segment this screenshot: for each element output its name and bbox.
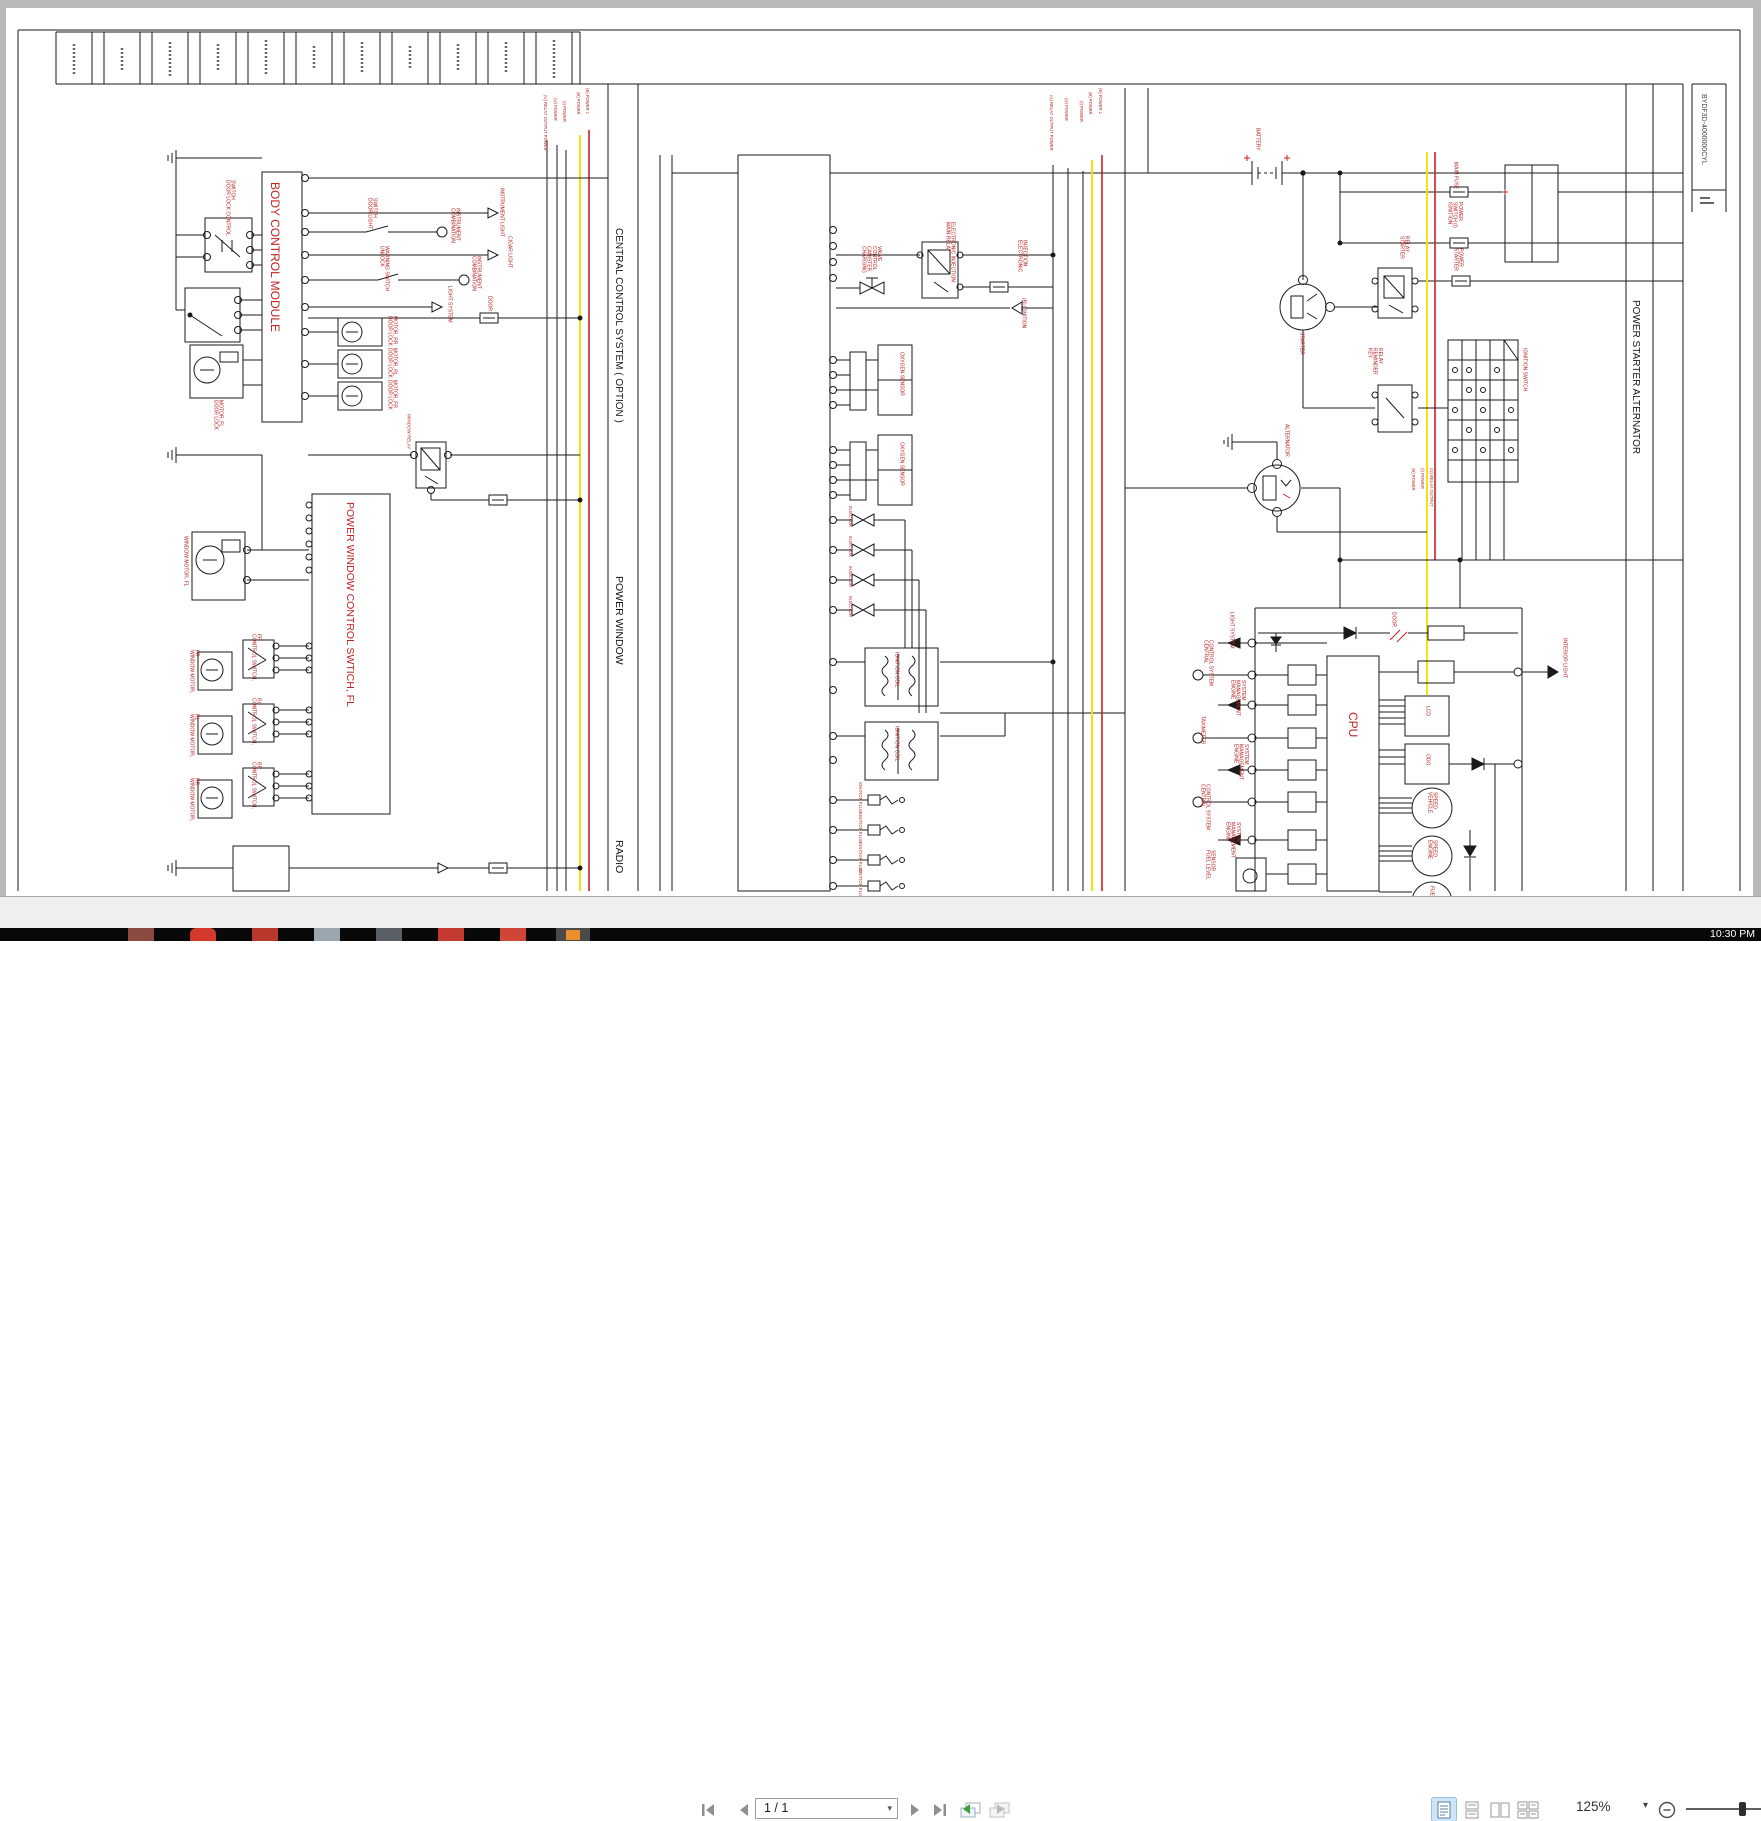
next-page-button[interactable]	[904, 1799, 928, 1821]
bus-label: (B) POWER	[1411, 468, 1415, 491]
bus-label: (U) RELAY OUTPUT POWER	[543, 95, 547, 151]
section-title-power-window: POWER WINDOW	[613, 576, 625, 665]
label-lcd: LCD	[1424, 706, 1429, 728]
taskbar-app-icon[interactable]	[252, 928, 278, 941]
label-door-lock-motor-fr: DOOR LOCK MOTOR, FR	[386, 380, 397, 416]
taskbar-app-icon[interactable]	[438, 928, 464, 941]
label-injector: INJECTOR	[848, 506, 852, 527]
chevron-down-icon[interactable]: ▾	[887, 1799, 892, 1818]
label-door-fuse: DOOR	[486, 296, 491, 316]
wiring-diagram-svg	[0, 0, 1761, 941]
window-left-edge	[0, 8, 6, 896]
label-control-switch-rr: CONTROL SWITCH, RR	[250, 762, 261, 810]
label-window-relay: WINDOW RELAY	[406, 414, 411, 442]
bus-label: (U) RELAY OUTPUT POWER	[1049, 95, 1053, 151]
label-pwcs: POWER WINDOW CONTROL SWTICH, FL	[344, 502, 356, 707]
label-ignition-switch-power: IGNITION SWITCH (I) POWER	[1446, 202, 1462, 238]
section-title-power-starter-alternator: POWER STARTER ALTERNATOR	[1630, 300, 1641, 454]
zoom-dropdown-caret-icon[interactable]: ▾	[1643, 1800, 1648, 1811]
label-bcm: BODY CONTROL MODULE	[268, 182, 282, 332]
section-title-central-control: CENTRAL CONTROL SYSTEM ( OPTION )	[613, 228, 624, 423]
label-ignition-coil: IGNITION COIL	[893, 652, 898, 702]
zoom-percent: 125%	[1576, 1799, 1611, 1814]
label-main-fuse: MAIN FUSE	[1452, 162, 1457, 190]
bus-label: (I) POWER	[562, 101, 566, 122]
pdf-page-canvas[interactable]: CENTRAL CONTROL SYSTEM ( OPTION ) POWER …	[0, 0, 1761, 941]
page-indicator: 1 / 1	[764, 1801, 788, 1815]
label-ignition-switch: IGNITION SWITCH	[1521, 348, 1526, 392]
label-window-motor-fl: WINDOW MOTOR, FL	[182, 536, 187, 600]
bus-label: (U) POWER	[1064, 98, 1068, 121]
label-fuel-level-sensor: FUEL LEVEL SENSOR	[1204, 850, 1215, 890]
next-view-button[interactable]	[985, 1799, 1013, 1821]
bus-label: (B) POWER	[1088, 92, 1092, 115]
label-starter: STARTER	[1298, 332, 1303, 366]
right-section	[578, 152, 1683, 922]
taskbar-app-icon[interactable]	[128, 928, 154, 941]
label-door-indicator: DOOR	[1390, 612, 1395, 632]
label-combination-instrument: COMBINATION INSTRUMENT	[449, 208, 460, 264]
continuous-facing-layout-button[interactable]	[1516, 1798, 1540, 1821]
label-ignition-coil: IGNITION COIL	[893, 726, 898, 776]
label-vehicle-speed: VEHICLE SPEED	[1426, 792, 1437, 826]
single-page-layout-button[interactable]	[1432, 1798, 1456, 1821]
taskbar-app-icon[interactable]	[314, 928, 340, 941]
label-cpu: CPU	[1346, 712, 1360, 737]
label-ignition-b: (B) IGNITION	[1020, 298, 1025, 338]
left-power-bus	[547, 130, 589, 891]
label-cigar-light: CIGAR LIGHT	[506, 236, 511, 276]
taskbar-clock[interactable]: 10:30 PM	[1710, 928, 1755, 941]
zoom-slider[interactable]	[1686, 1808, 1761, 1810]
window-right-edge	[1753, 8, 1761, 896]
bus-label: (B) POWER	[576, 92, 580, 115]
previous-view-button[interactable]	[956, 1799, 984, 1821]
folder-icon	[566, 930, 580, 940]
bus-label: (B) POWER 1	[585, 88, 589, 114]
window-top-edge	[0, 0, 1761, 8]
label-window-motor-fr: WINDOW MOTOR, FR	[188, 650, 199, 694]
label-combination-instrument: COMBINATION INSTRUMENT	[470, 256, 481, 312]
taskbar-app-icon[interactable]	[190, 928, 216, 941]
bus-label: (B) POWER 1	[1098, 88, 1102, 114]
label-engine-speed: ENGINE SPEED	[1426, 840, 1437, 874]
label-main-relay: MAIN RELAY ELECTRONIC INJECTION	[944, 222, 955, 282]
zoom-out-button[interactable]	[1655, 1799, 1679, 1821]
first-page-button[interactable]	[696, 1799, 720, 1821]
label-electronic-injection: ELECTRONIC INJECTION	[1016, 240, 1027, 284]
label-control-switch-rl: CONTROL SWITCH, RL	[250, 698, 261, 746]
label-battery: BATTERY	[1254, 128, 1259, 162]
label-window-motor-rl: WINDOW MOTOR, RL	[188, 714, 199, 758]
label-light-system: LIGHT SYSTEM	[1228, 612, 1233, 644]
facing-layout-button[interactable]	[1488, 1798, 1512, 1821]
label-injector: INJECTOR	[848, 596, 852, 617]
label-starter-power: STARTER POWER	[1452, 248, 1463, 274]
label-oxygen-sensor: OXYGEN SENSOR	[898, 352, 903, 410]
label-engine-management-system: ENGINE MANAGEMENT SYSTEM	[1224, 822, 1240, 870]
bus-label: (U) RELAY OUTPUT	[1429, 468, 1433, 507]
middle-section	[672, 155, 1125, 891]
label-door-lock-motor-rr: DOOR LOCK MOTOR, RR	[386, 316, 397, 352]
label-engine-management-system: ENGINE MANAGEMENT SYSTEM	[1232, 744, 1248, 792]
label-odo: ODO	[1424, 754, 1429, 776]
label-door-light-switch: DOOR LIGHT SWITCH	[366, 198, 377, 244]
taskbar-active-app-icon[interactable]	[556, 928, 590, 941]
label-taximeter: TAXIMETER	[1199, 716, 1204, 760]
label-instrument-light: INSTRUMENT LIGHT	[498, 188, 503, 238]
label-door-lock-motor-fl: DOOR LOCK MOTOR, FL	[212, 400, 223, 440]
label-door-lock-motor-rl: DOOR LOCK MOTOR, RL	[386, 348, 397, 384]
label-control-switch-fr: CONTROL SWITCH, FR	[250, 634, 261, 682]
continuous-layout-button[interactable]	[1460, 1798, 1484, 1821]
pdf-viewer-toolbar: 1 / 1 ▾ 125% ▾	[0, 896, 1761, 928]
label-central-control-system: CENTRAL CONTROL SYSTEM	[1202, 640, 1213, 688]
label-interior-light: INTERIOR LIGHT	[1561, 638, 1566, 680]
taskbar-app-icon[interactable]	[500, 928, 526, 941]
label-engine-management-system: ENGINE MANAGEMENT SYSTEM	[1229, 680, 1245, 728]
label-window-motor-rr: WINDOW MOTOR, RR	[188, 778, 199, 822]
label-ignition-plug: IGNITION PLUG	[858, 782, 862, 813]
middle-power-bus	[1053, 155, 1102, 891]
label-starter-relay: STARTER RELAY	[1398, 236, 1409, 266]
label-oxygen-sensor: OXYGEN SENSOR	[898, 442, 903, 500]
label-alternator: ALTERNATOR	[1283, 424, 1288, 462]
label-key-reminder-relay: KEY REMINDER RELAY	[1366, 348, 1382, 384]
drawing-number: BYDF3D-4000000CYL	[1700, 94, 1707, 165]
label-canister-valve: CHARGING CANISTER CONTROL VALVE	[860, 246, 881, 280]
bus-label: (U) POWER	[553, 98, 557, 121]
label-central-control-system: CENTRAL CONTROL SYSTEM	[1199, 784, 1210, 832]
bus-label: (I) POWER	[1079, 101, 1083, 122]
section-title-radio: RADIO	[613, 840, 625, 873]
page-number-combobox[interactable]: 1 / 1 ▾	[755, 1798, 898, 1819]
zoom-slider-handle[interactable]	[1739, 1802, 1746, 1816]
label-door-lock-control-switch: DOOR LOCK CONTROL SWITCH	[224, 180, 235, 240]
label-ignition-plug: IGNITION PLUG	[858, 812, 862, 843]
bus-label: (I) POWER	[1420, 468, 1424, 489]
prev-page-button[interactable]	[731, 1799, 755, 1821]
last-page-button[interactable]	[928, 1799, 952, 1821]
taskbar-app-icon[interactable]	[376, 928, 402, 941]
label-light-system: LIGHT SYSTEM	[446, 286, 451, 328]
label-injector: INJECTOR	[848, 566, 852, 587]
label-injector: INJECTOR	[848, 536, 852, 557]
label-ignition-plug: IGNITION PLUG	[858, 868, 862, 899]
taskbar: 10:30 PM	[0, 928, 1761, 941]
label-unlock-warning-switch: UNLOCK WARNING SWITCH	[378, 246, 389, 292]
